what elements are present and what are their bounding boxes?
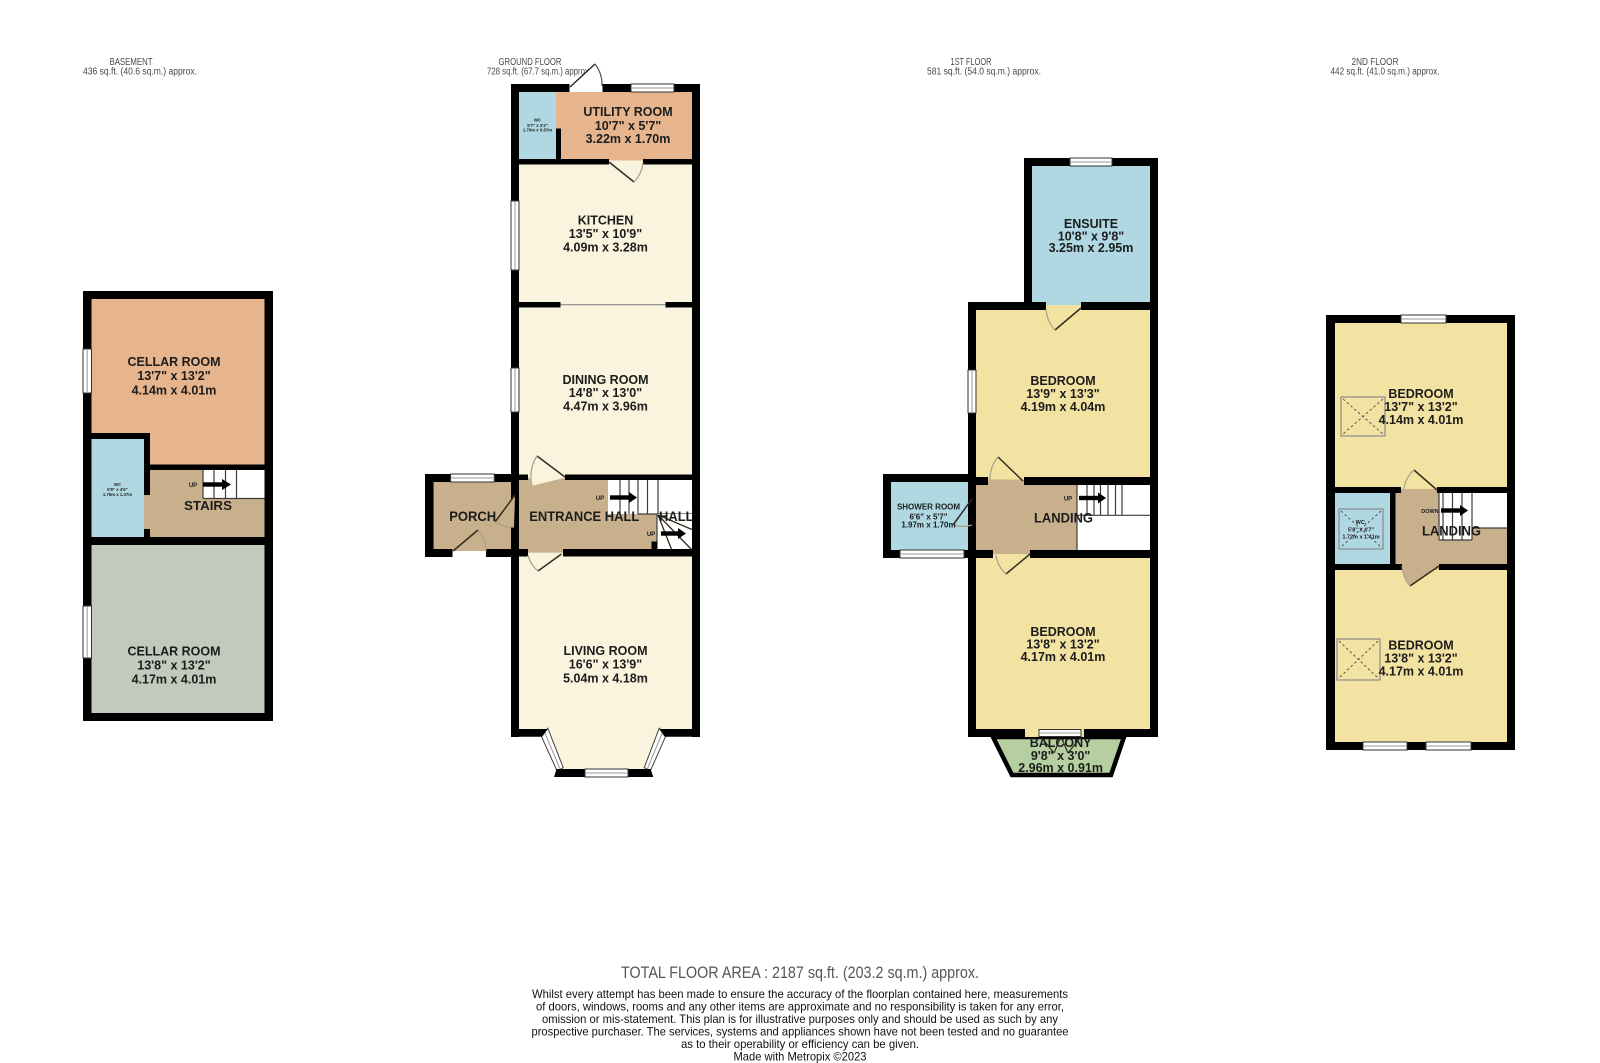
svg-text:UP: UP [189,483,197,489]
svg-text:13'5" x 10'9": 13'5" x 10'9" [569,227,642,241]
svg-text:STAIRS: STAIRS [184,498,232,513]
svg-text:BEDROOM: BEDROOM [1388,639,1453,653]
svg-text:ENTRANCE HALL: ENTRANCE HALL [529,509,639,524]
svg-text:BEDROOM: BEDROOM [1030,374,1095,388]
svg-text:DOWN: DOWN [1421,509,1438,515]
svg-text:13'8" x 13'2": 13'8" x 13'2" [137,659,210,673]
svg-text:2.96m x 0.91m: 2.96m x 0.91m [1018,761,1103,775]
svg-text:4.17m x 4.01m: 4.17m x 4.01m [132,673,217,687]
svg-text:4.17m x 4.01m: 4.17m x 4.01m [1379,665,1464,679]
svg-text:BEDROOM: BEDROOM [1388,387,1453,401]
svg-text:4.14m x 4.01m: 4.14m x 4.01m [132,383,217,397]
svg-text:KITCHEN: KITCHEN [578,214,634,228]
svg-text:1.70m x 0.67m: 1.70m x 0.67m [523,128,552,133]
svg-text:Made with Metropix ©2023: Made with Metropix ©2023 [734,1050,867,1063]
svg-text:PORCH: PORCH [449,509,496,524]
svg-text:UP: UP [647,532,655,538]
svg-text:UP: UP [1064,497,1072,503]
svg-text:CELLAR ROOM: CELLAR ROOM [127,645,220,659]
svg-text:LANDING: LANDING [1422,524,1481,539]
svg-text:3.22m x 1.70m: 3.22m x 1.70m [586,132,671,146]
svg-text:14'8" x 13'0": 14'8" x 13'0" [569,386,642,400]
svg-text:1.97m x 1.70m: 1.97m x 1.70m [901,521,955,530]
svg-text:728 sq.ft. (67.7 sq.m.) approx: 728 sq.ft. (67.7 sq.m.) approx. [487,67,591,78]
svg-text:DINING ROOM: DINING ROOM [562,373,648,387]
svg-text:4.09m x 3.28m: 4.09m x 3.28m [563,241,648,255]
svg-text:3.25m x 2.95m: 3.25m x 2.95m [1049,241,1134,255]
svg-text:SHOWER ROOM: SHOWER ROOM [897,503,960,512]
svg-text:5'8" x 4'7": 5'8" x 4'7" [1348,528,1375,534]
svg-text:WC: WC [534,118,541,123]
svg-text:13'7" x 13'2": 13'7" x 13'2" [1384,400,1457,414]
svg-text:WC.: WC. [1356,520,1367,526]
svg-text:442 sq.ft. (41.0 sq.m.) approx: 442 sq.ft. (41.0 sq.m.) approx. [1331,67,1440,78]
svg-text:4.19m x 4.04m: 4.19m x 4.04m [1021,400,1106,414]
svg-text:13'9" x 13'3": 13'9" x 13'3" [1026,387,1099,401]
svg-text:10'7" x 5'7": 10'7" x 5'7" [595,119,662,133]
svg-text:13'8" x 13'2": 13'8" x 13'2" [1384,652,1457,666]
svg-text:CELLAR ROOM: CELLAR ROOM [127,355,220,369]
svg-text:16'6" x 13'9": 16'6" x 13'9" [569,658,642,672]
svg-text:BALCONY: BALCONY [1030,736,1092,750]
svg-text:UTILITY ROOM: UTILITY ROOM [583,105,672,119]
svg-text:436 sq.ft. (40.6 sq.m.) approx: 436 sq.ft. (40.6 sq.m.) approx. [83,67,197,78]
svg-text:HALL: HALL [659,509,694,524]
svg-text:581 sq.ft. (54.0 sq.m.) approx: 581 sq.ft. (54.0 sq.m.) approx. [927,67,1041,78]
svg-text:LANDING: LANDING [1034,511,1093,526]
svg-text:4.14m x 4.01m: 4.14m x 4.01m [1379,413,1464,427]
svg-text:5.04m x 4.18m: 5.04m x 4.18m [563,672,648,686]
svg-text:13'7" x 13'2": 13'7" x 13'2" [137,369,210,383]
svg-text:UP: UP [596,496,604,502]
svg-text:4.17m x 4.01m: 4.17m x 4.01m [1021,650,1106,664]
svg-text:4.47m x 3.96m: 4.47m x 3.96m [563,400,648,414]
svg-text:LIVING ROOM: LIVING ROOM [563,644,647,658]
svg-text:1.72m x 1.41m: 1.72m x 1.41m [1342,535,1379,541]
svg-text:TOTAL FLOOR AREA : 2187 sq.ft.: TOTAL FLOOR AREA : 2187 sq.ft. (203.2 sq… [621,963,979,982]
svg-text:1.75m x 1.37m: 1.75m x 1.37m [103,492,132,497]
